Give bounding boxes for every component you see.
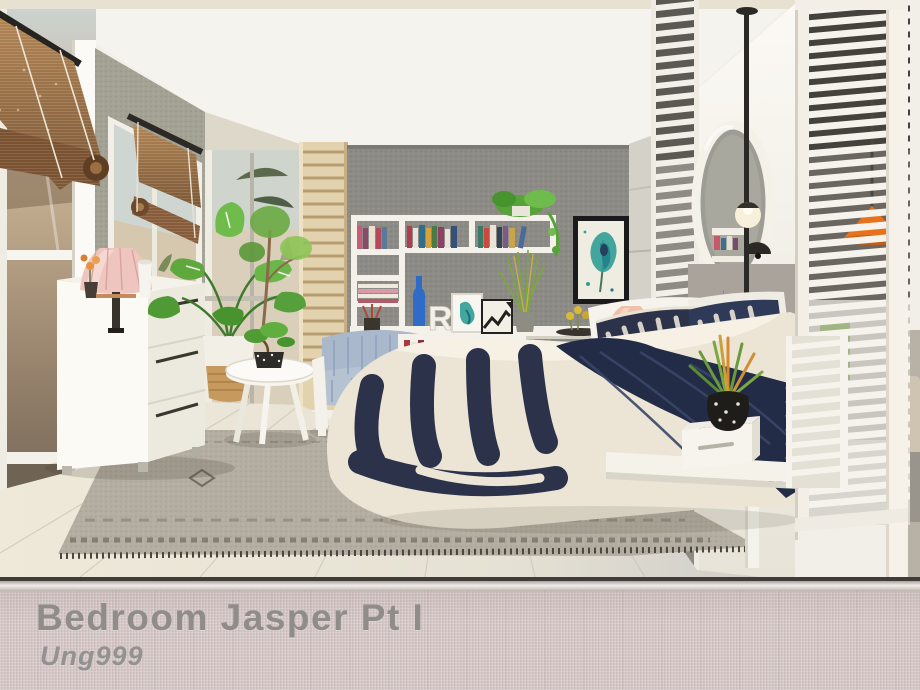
bedroom-render: R: [0, 0, 920, 577]
creator-name: Ung999: [40, 641, 144, 672]
divider-gate: [786, 330, 848, 488]
shelf-books: [357, 225, 527, 249]
banner: Bedroom Jasper Pt I Ung999: [0, 577, 920, 690]
set-title: Bedroom Jasper Pt I: [36, 597, 424, 639]
small-art-frames: [452, 294, 512, 333]
decor-letter: R: [428, 300, 453, 338]
room-divider: [786, 0, 910, 577]
banner-edge-light: [0, 581, 920, 591]
screenshot-root: R: [0, 0, 920, 690]
banner-body: Bedroom Jasper Pt I Ung999: [0, 591, 920, 690]
peacock-feather-art: [573, 216, 629, 304]
